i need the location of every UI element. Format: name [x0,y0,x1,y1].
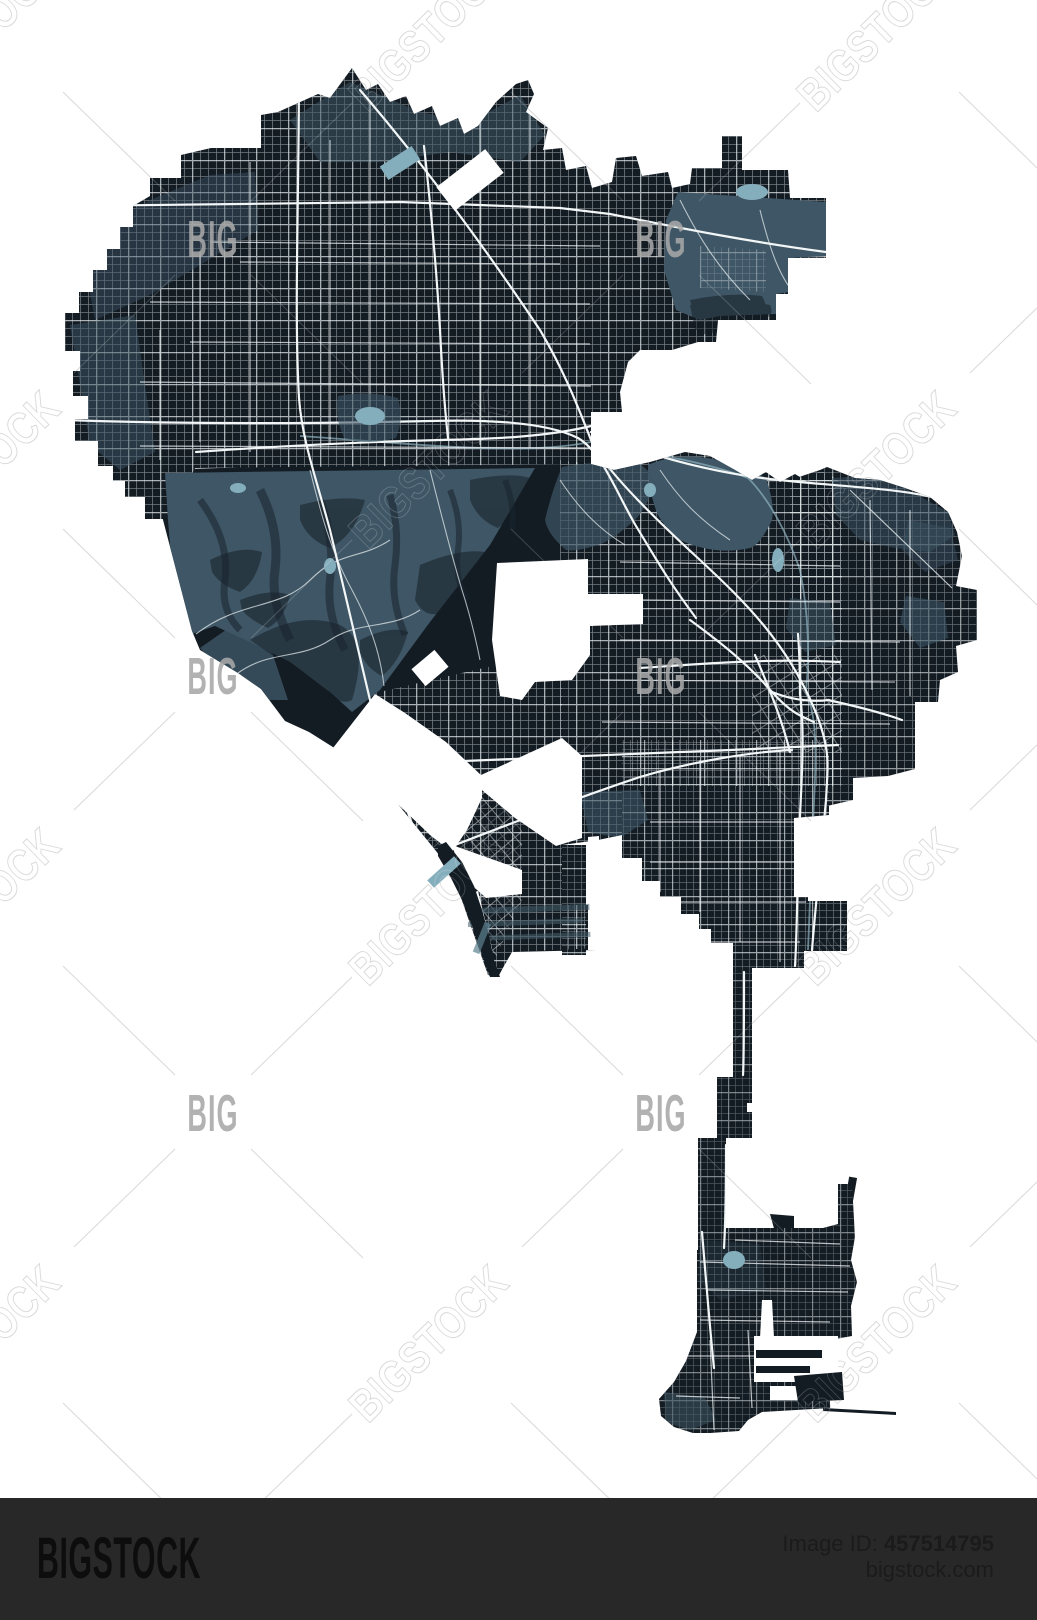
svg-text:BIGSTOCK: BIGSTOCK [37,1525,201,1590]
svg-text:bigstock.com: bigstock.com [866,1557,994,1582]
svg-text:BIG: BIG [635,1083,686,1142]
svg-text:BIG: BIG [187,209,238,268]
svg-text:BIG: BIG [187,646,238,705]
svg-text:BIG: BIG [635,646,686,705]
svg-text:Image ID: 457514795: Image ID: 457514795 [782,1531,994,1556]
svg-text:BIG: BIG [187,1083,238,1142]
svg-text:BIG: BIG [635,209,686,268]
